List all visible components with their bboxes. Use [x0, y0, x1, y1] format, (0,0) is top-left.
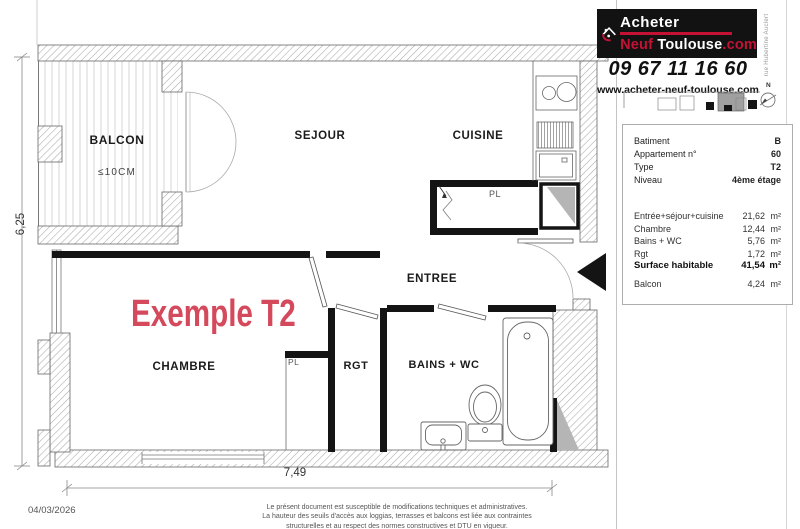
info-label: Appartement n° — [634, 148, 697, 161]
floorplan-sheet: BALCON ≤10CM SEJOUR CUISINE ENTREE CHAMB… — [0, 0, 800, 529]
example-watermark: Exemple T2 — [131, 293, 296, 336]
area-unit: m² — [765, 248, 781, 261]
street-name-label: rue Hubertine Auclert — [764, 4, 770, 86]
area-value: 1,72 — [733, 248, 765, 261]
area-unit: m² — [765, 260, 781, 273]
entrance-door — [518, 239, 573, 298]
area-label: Entrée+séjour+cuisine — [634, 210, 733, 223]
french-door — [186, 92, 236, 192]
room-label-chambre: CHAMBRE — [126, 361, 242, 373]
area-unit: m² — [765, 278, 781, 291]
dimension-left: 6,25 — [15, 194, 27, 254]
phone-number: 09 67 11 16 60 — [590, 58, 766, 81]
info-value: B — [775, 135, 782, 148]
info-row: Type T2 — [634, 161, 781, 174]
apartment-info-panel: Batiment B Appartement n° 60 Type T2 Niv… — [622, 124, 793, 305]
area-unit: m² — [765, 223, 781, 236]
entrance-arrow-icon — [577, 253, 606, 291]
area-row: Chambre 12,44 m² — [634, 223, 781, 236]
area-label: Rgt — [634, 248, 733, 261]
area-row: Bains + WC 5,76 m² — [634, 235, 781, 248]
compass-icon — [757, 88, 781, 112]
room-label-cuisine: CUISINE — [420, 130, 536, 142]
area-unit: m² — [765, 210, 781, 223]
legal-disclaimer: Le présent document est susceptible de m… — [232, 503, 562, 529]
info-label: Niveau — [634, 174, 662, 187]
area-label: Chambre — [634, 223, 733, 236]
room-label-rgt: RGT — [330, 360, 382, 372]
area-table: Entrée+séjour+cuisine 21,62 m² Chambre 1… — [634, 210, 781, 290]
balcony-decking — [37, 0, 178, 244]
logo-line1: Acheter — [620, 15, 757, 30]
area-value: 4,24 — [733, 278, 765, 291]
technical-duct-kitchen — [541, 184, 578, 228]
logo-line2-toulouse: Toulouse — [653, 37, 722, 53]
floor-plan-svg — [0, 0, 620, 500]
disclaimer-line: Le présent document est susceptible de m… — [232, 503, 562, 512]
window-south — [142, 452, 264, 464]
room-label-balcon: BALCON — [58, 133, 176, 147]
area-value: 5,76 — [733, 235, 765, 248]
logo-red-bar — [620, 32, 732, 35]
info-value: 4ème étage — [732, 174, 781, 187]
area-value: 21,62 — [733, 210, 765, 223]
info-label: Type — [634, 161, 654, 174]
logo-house-icon — [602, 13, 616, 55]
area-label: Surface habitable — [634, 260, 733, 273]
room-label-entree: ENTREE — [374, 273, 490, 285]
area-value: 12,44 — [733, 223, 765, 236]
info-row: Appartement n° 60 — [634, 148, 781, 161]
area-row-total: Surface habitable 41,54 m² — [634, 260, 781, 273]
dimension-bottom: 7,49 — [255, 467, 335, 479]
area-unit: m² — [765, 235, 781, 248]
info-value: T2 — [770, 161, 781, 174]
closet-hanger-icon — [439, 186, 452, 220]
closet-label-chambre: PL — [288, 357, 299, 367]
area-row: Rgt 1,72 m² — [634, 248, 781, 261]
plan-date: 04/03/2026 — [28, 505, 76, 516]
kitchen-fixtures — [533, 61, 577, 181]
disclaimer-line: La hauteur des seuils d'accès aux loggia… — [232, 512, 562, 521]
balcony-threshold-note: ≤10CM — [58, 167, 176, 178]
info-row: Batiment B — [634, 135, 781, 148]
site-mini-map — [618, 88, 762, 114]
area-label: Balcon — [634, 278, 733, 291]
logo-line2-neuf: Neuf — [620, 37, 653, 53]
info-value: 60 — [771, 148, 781, 161]
info-row: Niveau 4ème étage — [634, 174, 781, 187]
bathroom-fixtures — [421, 318, 553, 450]
room-label-bains: BAINS + WC — [384, 359, 504, 371]
disclaimer-line: structurelles et au respect des normes c… — [232, 522, 562, 529]
area-row: Balcon 4,24 m² — [634, 278, 781, 291]
agency-logo: Acheter Neuf Toulouse.com — [597, 9, 757, 58]
room-label-sejour: SEJOUR — [262, 130, 378, 142]
area-row: Entrée+séjour+cuisine 21,62 m² — [634, 210, 781, 223]
closet-label-kitchen: PL — [489, 189, 501, 199]
logo-line2-com: .com — [722, 37, 757, 53]
area-label: Bains + WC — [634, 235, 733, 248]
area-value: 41,54 — [733, 260, 765, 273]
info-label: Batiment — [634, 135, 670, 148]
window-west — [52, 250, 61, 333]
